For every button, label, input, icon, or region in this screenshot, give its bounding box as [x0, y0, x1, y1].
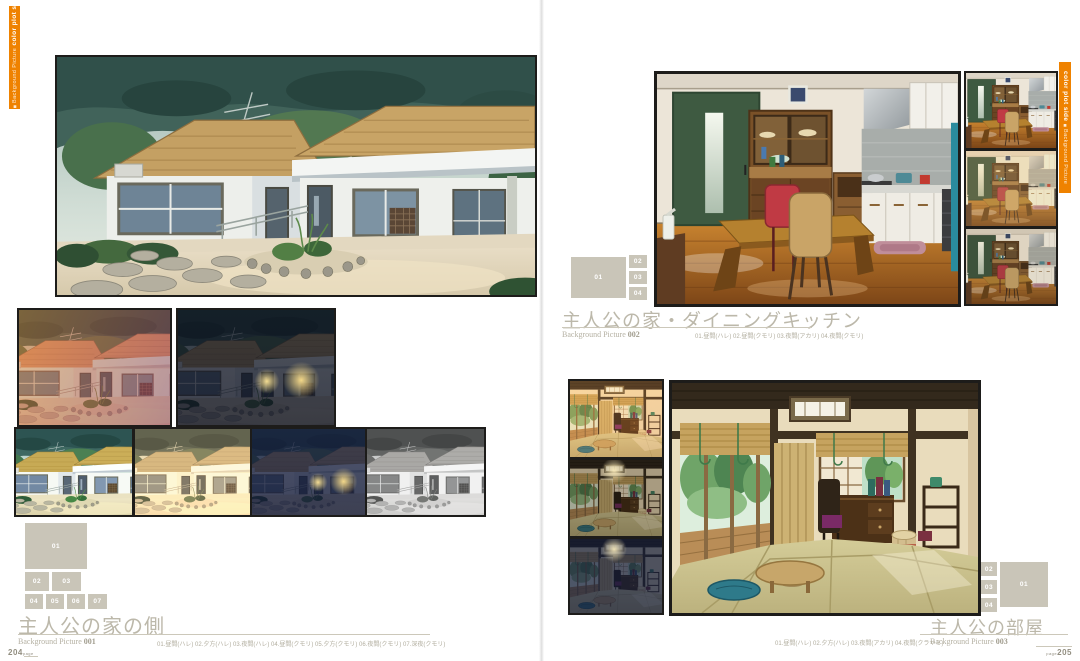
legend-box-03: 03	[981, 580, 997, 594]
section-subtitle-002: Background Picture 002	[562, 330, 640, 339]
subtitle-number: 002	[628, 330, 640, 339]
page-gutter	[539, 0, 544, 661]
main-image-kitchen	[654, 71, 961, 307]
main-image-room	[669, 380, 981, 616]
section-title-002: 主人公の家・ダイニングキッチン	[562, 306, 862, 333]
legend-box-02: 02	[25, 572, 49, 591]
tab-small-label: Background Picture	[1062, 129, 1068, 184]
legend-box-04: 04	[981, 598, 997, 612]
subtitle-number: 003	[996, 637, 1008, 646]
tab-small-label: Background Picture	[12, 47, 18, 102]
tab-bold-label: color plot side	[1062, 71, 1069, 121]
thumb-kitchen-2	[964, 149, 1058, 228]
legend-box-04: 04	[629, 287, 647, 300]
thumb-house-nightblue-variant	[250, 427, 370, 517]
section-subtitle-001: Background Picture 001	[18, 637, 96, 646]
title-rule-001	[18, 634, 430, 635]
thumb-room-night-dark	[568, 537, 664, 615]
legend-box-01: 01	[25, 523, 87, 569]
thumb-house-day-variant	[14, 427, 134, 517]
legend-box-04: 04	[25, 594, 43, 609]
legend-box-01: 01	[1000, 562, 1048, 607]
page-number-value: 205	[1057, 648, 1072, 657]
legend-box-06: 06	[67, 594, 85, 609]
main-image-house-day	[55, 55, 537, 297]
thumb-house-gray-variant	[365, 427, 486, 517]
subtitle-label: Background Picture	[18, 637, 84, 646]
page-number-right: page205	[1030, 648, 1072, 657]
caption-001: 01.昼間(ハレ) 02.夕方(ハレ) 03.夜間(ハレ) 04.昼間(クモリ)…	[157, 639, 445, 648]
thumb-room-night-lit	[568, 458, 664, 538]
page-word: page	[1046, 651, 1057, 656]
caption-002: 01.昼間(ハレ) 02.昼間(クモリ) 03.夜間(アカリ) 04.夜間(クモ…	[695, 331, 863, 340]
thumb-house-sunset	[17, 308, 172, 427]
legend-box-07: 07	[88, 594, 107, 609]
thumb-kitchen-1	[964, 71, 1058, 150]
legend-box-05: 05	[46, 594, 64, 609]
page-number-value: 204	[8, 648, 23, 657]
right-edge-tab: color plot side ■Background Picture	[1059, 62, 1071, 193]
legend-box-01: 01	[571, 257, 626, 298]
legend-box-02: 02	[629, 255, 647, 268]
legend-box-03: 03	[52, 572, 81, 591]
subtitle-label: Background Picture	[562, 330, 628, 339]
legend-box-02: 02	[981, 562, 997, 576]
subtitle-number: 001	[84, 637, 96, 646]
thumb-room-evening	[568, 379, 664, 459]
thumb-house-night	[176, 308, 336, 427]
thumb-kitchen-3	[964, 227, 1058, 306]
title-rule-002	[562, 327, 812, 328]
title-rule-003	[920, 634, 1068, 635]
left-edge-tab: ■Background Picture color plot side	[9, 6, 20, 109]
tab-marker: ■	[12, 103, 18, 109]
thumb-house-sepia-variant	[133, 427, 252, 517]
caption-003: 01.昼間(ハレ) 02.夕方(ハレ) 03.夜間(アカリ) 04.夜間(クラヤ…	[775, 638, 943, 647]
legend-box-03: 03	[629, 271, 647, 284]
tab-bold-label: color plot side	[11, 0, 18, 45]
